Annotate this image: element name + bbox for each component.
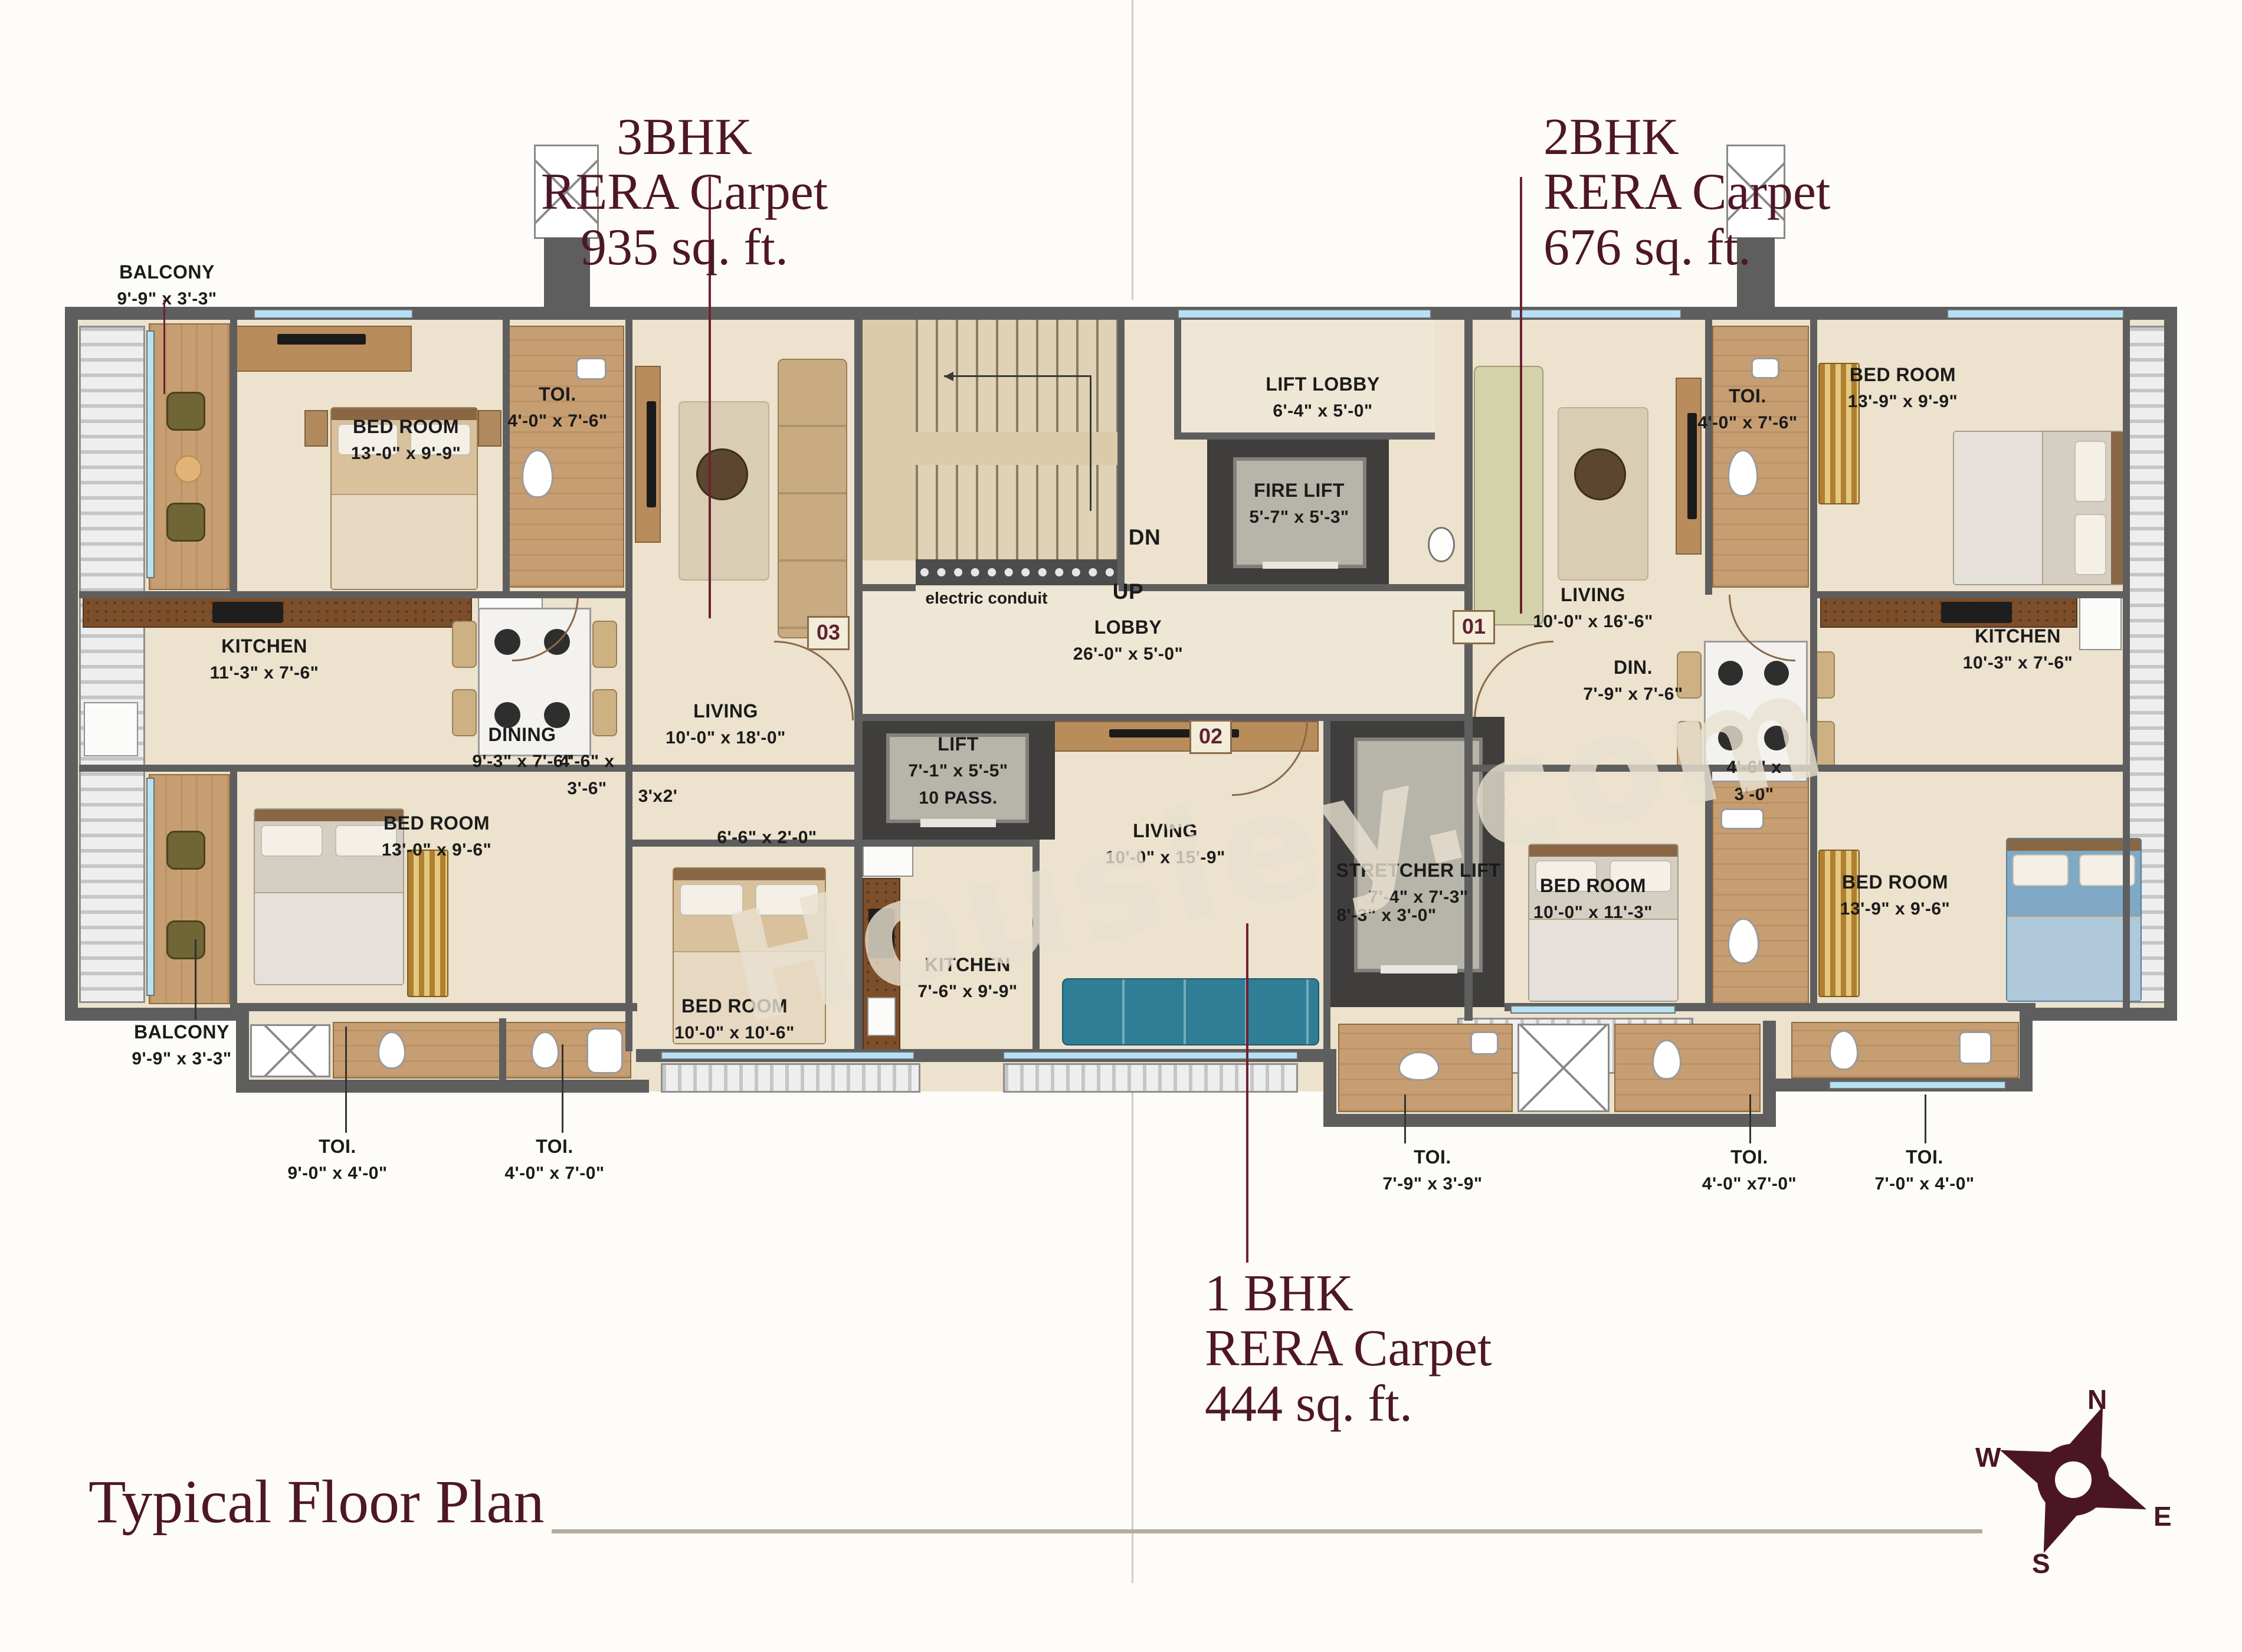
electric-conduit-strip — [916, 559, 1119, 585]
label-living-right: LIVING 10'-0" x 16'-6" — [1533, 581, 1653, 635]
label-bed-top-left: BED ROOM 13'-0" x 9'-9" — [351, 413, 461, 467]
wall — [236, 1003, 637, 1011]
wall — [2020, 1008, 2033, 1091]
compass-rose: N E S W — [1972, 1378, 2184, 1591]
sink — [867, 997, 896, 1036]
dim-note: 4'-6" x — [1726, 754, 1781, 781]
duct-shaft-bottom-center — [1517, 1024, 1610, 1112]
wall — [1817, 591, 2130, 598]
room-name: DIN. — [1583, 654, 1683, 681]
label-stairs-dn: DN — [1129, 524, 1161, 551]
window — [1510, 1005, 1676, 1014]
room-dims: 13'-0" x 9'-9" — [351, 440, 461, 467]
wall — [230, 768, 237, 1010]
window — [1947, 309, 2124, 319]
dining-chair — [592, 621, 617, 668]
label-toi-top-right: TOI. 4'-0" x 7'-6" — [1697, 382, 1797, 437]
nightstand — [478, 410, 501, 447]
ledge-left — [79, 326, 145, 1003]
balcony-chair — [166, 392, 205, 431]
room-dims: 13'-9" x 9'-6" — [1840, 896, 1950, 923]
room-name: TOI. — [287, 1133, 387, 1160]
label-living-center: LIVING 10'-0" x 15'-9" — [1105, 817, 1225, 871]
basin-fixture — [1470, 1031, 1499, 1055]
balcony-chair — [166, 920, 205, 959]
wall — [499, 1018, 506, 1080]
room-name: FIRE LIFT — [1249, 477, 1349, 504]
label-passage-left: 4'-6" x 3'-6" — [559, 748, 614, 802]
window — [1829, 1081, 2006, 1089]
label-kitchen-right: KITCHEN 10'-3" x 7'-6" — [1963, 622, 2073, 677]
label-niche-left: 3'x2' — [638, 785, 678, 808]
room-name: LIVING — [1105, 817, 1225, 844]
unit-type-line: 935 sq. ft. — [541, 220, 828, 275]
room-name: BED ROOM — [674, 992, 795, 1020]
wall — [625, 320, 632, 768]
unit-number-02: 02 — [1189, 720, 1232, 754]
label-lobby: LOBBY 26'-0" x 5'-0" — [1073, 614, 1183, 668]
leader-toi-bl2 — [562, 1044, 563, 1133]
wall-bottom-center-protrusion — [1323, 1114, 1776, 1127]
room-name: STRETCHER LIFT — [1336, 857, 1501, 884]
stair-arrow-line — [944, 375, 1091, 377]
room-dims: 26'-0" x 5'-0" — [1073, 641, 1183, 668]
stove — [1941, 602, 2012, 623]
balcony-chair — [166, 831, 205, 870]
room-dims: 10'-0" x 10'-6" — [674, 1020, 795, 1047]
window — [254, 309, 413, 319]
label-toi-bottom-right-2: TOI. 7'-0" x 4'-0" — [1874, 1143, 1974, 1198]
label-dining-left: DINING 9'-3" x 7'-6" — [472, 721, 572, 775]
wall — [632, 840, 1040, 847]
label-bed-bottom-right-2: BED ROOM 13'-9" x 9'-6" — [1840, 868, 1950, 923]
room-dims: 10'-3" x 7'-6" — [1963, 650, 2073, 677]
wall — [1473, 765, 2130, 772]
room-dims: 4'-0" x 7'-6" — [1697, 409, 1797, 437]
room-dims: 9'-9" x 3'-3" — [132, 1045, 231, 1073]
dim-note: 4'-6" x — [559, 748, 614, 775]
room-name: KITCHEN — [210, 632, 319, 660]
leader-balcony-bottom — [195, 939, 196, 1020]
sofa-living-left — [778, 359, 847, 638]
label-toi-bottom-left-1: TOI. 9'-0" x 4'-0" — [287, 1133, 387, 1187]
tv — [647, 401, 656, 507]
label-kitchen-left: KITCHEN 11'-3" x 7'-6" — [210, 632, 319, 687]
compass-e: E — [2153, 1501, 2172, 1532]
room-dims: 4'-0" x 7'-6" — [507, 408, 607, 435]
wall — [1810, 320, 1817, 768]
fridge — [2079, 597, 2122, 650]
basin-fixture — [1720, 808, 1764, 830]
compass-s: S — [2032, 1548, 2050, 1579]
dim-note: 3'-0" — [1726, 781, 1781, 808]
plate — [1718, 661, 1743, 686]
toilet-top-left-floor — [507, 326, 624, 588]
label-toi-top-left: TOI. 4'-0" x 7'-6" — [507, 381, 607, 435]
conduit-text: electric conduit — [926, 589, 1048, 607]
stretcher-lift-car — [1354, 737, 1483, 972]
window — [1178, 309, 1431, 319]
label-balcony-bottom-left: BALCONY 9'-9" x 3'-3" — [132, 1018, 231, 1073]
room-name: TOI. — [1382, 1143, 1482, 1171]
unit-number-01: 01 — [1453, 610, 1495, 644]
basin-fixture — [1751, 358, 1779, 379]
plate — [1764, 726, 1789, 750]
room-name: LIFT — [908, 730, 1008, 758]
tv — [1687, 413, 1697, 519]
sofa-living-center — [1062, 978, 1319, 1045]
bed-bottom-right-2 — [2006, 838, 2142, 1002]
room-dims: 10'-0" x 15'-9" — [1105, 844, 1225, 871]
compass-w: W — [1975, 1442, 2001, 1473]
unit-type-line: 444 sq. ft. — [1205, 1376, 1492, 1431]
duct-shaft-bottom-left — [250, 1024, 330, 1077]
balcony-chair — [166, 503, 205, 542]
window — [1510, 309, 1681, 319]
dim-note: 3'-6" — [559, 775, 614, 802]
room-dims: 7'-9" x 3'-9" — [1382, 1171, 1482, 1198]
wall — [854, 584, 916, 591]
room-dims: 7'-1" x 5'-5" — [908, 758, 1008, 785]
plate — [1718, 726, 1743, 750]
coffee-table — [696, 448, 748, 500]
unit-type-line: 3BHK — [541, 110, 828, 165]
ledge-bottom-2 — [1003, 1063, 1298, 1093]
unit-number-03: 03 — [807, 616, 850, 650]
wc-fixture — [1398, 1051, 1440, 1081]
wall — [1119, 584, 1464, 591]
balcony-plant — [175, 455, 202, 483]
stair-mid-landing — [916, 432, 1119, 465]
label-toi-center-right: TOI. 7'-9" x 3'-9" — [1382, 1143, 1482, 1198]
room-name: DINING — [472, 721, 572, 748]
label-bed-bottom-left: BED ROOM 13'-0" x 9'-6" — [382, 809, 491, 864]
label-bed-top-right: BED ROOM 13'-9" x 9'-9" — [1848, 361, 1958, 415]
room-name: LOBBY — [1073, 614, 1183, 641]
dresser-top-left — [235, 326, 412, 372]
fire-lift-door — [1263, 562, 1338, 569]
label-fire-lift: FIRE LIFT 5'-7" x 5'-3" — [1249, 477, 1349, 531]
washing-machine — [84, 702, 138, 756]
room-dims: 7'-6" x 9'-9" — [917, 978, 1017, 1005]
label-bed-bottom-right-1: BED ROOM 10'-0" x 11'-3" — [1533, 872, 1653, 926]
room-name: TOI. — [507, 381, 607, 408]
wardrobe-bottom-left — [407, 850, 448, 997]
room-dims: 7'-4" x 7'-3" — [1336, 884, 1501, 911]
label-stairs-up: UP — [1113, 578, 1143, 605]
wall — [1323, 717, 1330, 1050]
dim-note: 3'x2' — [638, 785, 678, 808]
room-name: BED ROOM — [1840, 868, 1950, 896]
unit-type-line: RERA Carpet — [1543, 165, 1830, 219]
wall — [1810, 768, 1817, 1010]
basin-fixture — [1959, 1031, 1992, 1064]
balcony-bottom-left-floor — [149, 774, 230, 1004]
leader-balcony-top — [163, 300, 165, 394]
room-name: TOI. — [1874, 1143, 1974, 1171]
room-name: BED ROOM — [1533, 872, 1653, 899]
unit-type-line: RERA Carpet — [541, 165, 828, 219]
floor-plan-page: BALCONY 9'-9" x 3'-3" BED ROOM 13'-0" x … — [0, 0, 2242, 1652]
leader-toi-br1 — [1749, 1094, 1751, 1143]
label-passage-right: 4'-6" x 3'-0" — [1726, 754, 1781, 808]
page-title: Typical Floor Plan — [88, 1467, 545, 1537]
window — [661, 1051, 914, 1060]
compass-n: N — [2087, 1384, 2107, 1415]
unit-type-line: 1 BHK — [1205, 1266, 1492, 1321]
basin-fixture — [576, 358, 607, 380]
room-dims: 13'-0" x 9'-6" — [382, 837, 491, 864]
label-shelf-left: 6'-6" x 2'-0" — [717, 826, 817, 850]
wall — [230, 320, 237, 595]
label-stretcher-lift: STRETCHER LIFT 7'-4" x 7'-3" — [1336, 857, 1501, 911]
room-dims: 11'-3" x 7'-6" — [210, 660, 319, 687]
wall — [1705, 768, 1712, 1010]
stove — [868, 909, 894, 958]
wall-lobby-bottom — [854, 714, 1464, 721]
label-lift: LIFT 7'-1" x 5'-5" 10 PASS. — [908, 730, 1008, 812]
nightstand — [304, 410, 328, 447]
fridge — [863, 841, 913, 877]
toilet-bottom-right1-floor — [1614, 1024, 1761, 1112]
room-dims: 10'-0" x 18'-0" — [666, 725, 786, 752]
room-dims: 13'-9" x 9'-9" — [1848, 388, 1958, 415]
unit-type-3bhk: 3BHK RERA Carpet 935 sq. ft. — [541, 110, 828, 275]
room-name: BED ROOM — [351, 413, 461, 440]
wall — [1705, 320, 1712, 595]
wall-stairs-right — [1117, 320, 1125, 585]
room-name: BALCONY — [132, 1018, 231, 1045]
stretcher-lift-door — [1381, 965, 1457, 973]
wall-lift-lobby-left — [1174, 320, 1181, 440]
wall — [2123, 320, 2130, 1010]
core-column-symbol — [1428, 527, 1455, 562]
wall — [79, 591, 632, 598]
room-name: TOI. — [1702, 1143, 1797, 1171]
wall-bottom-left-protrusion — [236, 1080, 649, 1093]
window — [1003, 1051, 1298, 1060]
leader-1bhk — [1246, 923, 1248, 1263]
bed-top-right — [1953, 431, 2124, 585]
leader-toi-br2 — [1925, 1094, 1926, 1143]
unit-type-line: RERA Carpet — [1205, 1321, 1492, 1376]
label-toi-bottom-left-2: TOI. 4'-0" x 7'-0" — [504, 1133, 604, 1187]
wall-outer-bottom-right-tip — [2033, 1008, 2177, 1021]
tv — [277, 334, 366, 345]
room-dims: 5'-7" x 5'-3" — [1249, 504, 1349, 531]
wall-outer-left — [65, 307, 78, 1021]
room-name: LIFT LOBBY — [1266, 371, 1379, 398]
stove — [212, 602, 283, 623]
room-dims: 6'-4" x 5'-0" — [1266, 398, 1379, 425]
room-name: TOI. — [1697, 382, 1797, 409]
unit-type-2bhk: 2BHK RERA Carpet 676 sq. ft. — [1543, 110, 1830, 275]
room-dims: 4'-0" x 7'-0" — [504, 1160, 604, 1187]
room-dims: 7'-0" x 4'-0" — [1874, 1171, 1974, 1198]
room-name: BED ROOM — [1848, 361, 1958, 388]
label-living-left: LIVING 10'-0" x 18'-0" — [666, 697, 786, 752]
room-dims: 10'-0" x 16'-6" — [1533, 608, 1653, 635]
room-name: BED ROOM — [382, 809, 491, 837]
room-name: BALCONY — [117, 258, 217, 286]
plate — [1764, 661, 1789, 686]
room-name: LIVING — [666, 697, 786, 725]
room-dims: 4'-0" x7'-0" — [1702, 1171, 1797, 1198]
room-dims: 9'-9" x 3'-3" — [117, 286, 217, 313]
leader-2bhk — [1520, 177, 1522, 614]
room-dims: 10 PASS. — [908, 785, 1008, 812]
ledge-bottom-1 — [661, 1063, 920, 1093]
wall — [503, 320, 510, 595]
label-toi-bottom-right-1: TOI. 4'-0" x7'-0" — [1702, 1143, 1797, 1198]
dining-chair — [1677, 721, 1702, 768]
room-name: TOI. — [504, 1133, 604, 1160]
unit-type-line: 2BHK — [1543, 110, 1830, 165]
lift-door — [920, 819, 996, 827]
room-name: LIVING — [1533, 581, 1653, 608]
wall-outer-right — [2164, 307, 2177, 1021]
label-balcony-top-left: BALCONY 9'-9" x 3'-3" — [117, 258, 217, 313]
wall-lift-lobby-bottom — [1174, 432, 1435, 440]
unit-type-line: 676 sq. ft. — [1543, 220, 1830, 275]
wall-core-right — [1464, 320, 1473, 1021]
label-lift-lobby: LIFT LOBBY 6'-4" x 5'-0" — [1266, 371, 1379, 425]
label-bed-center: BED ROOM 10'-0" x 10'-6" — [674, 992, 795, 1047]
room-name: KITCHEN — [1963, 622, 2073, 650]
stair-path-line — [1090, 375, 1091, 511]
wall-core-left — [854, 320, 863, 1051]
title-underline — [552, 1529, 1982, 1533]
wall — [79, 765, 861, 772]
coffee-table — [1574, 448, 1626, 500]
room-dims: 7'-9" x 7'-6" — [1583, 681, 1683, 708]
stair-flight-lower — [916, 465, 1119, 560]
leader-toi-bl1 — [345, 1027, 347, 1133]
leader-toi-cr — [1404, 1094, 1406, 1143]
dining-chair — [592, 689, 617, 736]
page-divider-top — [1132, 0, 1133, 300]
dining-chair — [452, 621, 477, 668]
dim-note: 6'-6" x 2'-0" — [717, 826, 817, 850]
wall — [1032, 840, 1040, 1050]
bathtub-fixture — [586, 1028, 623, 1074]
room-dims: 9'-0" x 4'-0" — [287, 1160, 387, 1187]
window — [146, 330, 155, 578]
wall — [1763, 1021, 1776, 1127]
window — [146, 778, 155, 996]
room-dims: 10'-0" x 11'-3" — [1533, 899, 1653, 926]
compass-ring — [2046, 1453, 2100, 1507]
label-dining-right: DIN. 7'-9" x 7'-6" — [1583, 654, 1683, 708]
unit-type-1bhk: 1 BHK RERA Carpet 444 sq. ft. — [1205, 1266, 1492, 1431]
stair-landing-left — [861, 320, 916, 560]
room-name: KITCHEN — [917, 951, 1017, 978]
page-divider-bottom — [1132, 1081, 1133, 1583]
stairs-dn-text: DN — [1129, 524, 1161, 551]
room-dims: 9'-3" x 7'-6" — [472, 748, 572, 775]
label-kitchen-center: KITCHEN 7'-6" x 9'-9" — [917, 951, 1017, 1005]
label-electric-conduit: electric conduit — [926, 589, 1048, 608]
stairs-up-text: UP — [1113, 578, 1143, 605]
